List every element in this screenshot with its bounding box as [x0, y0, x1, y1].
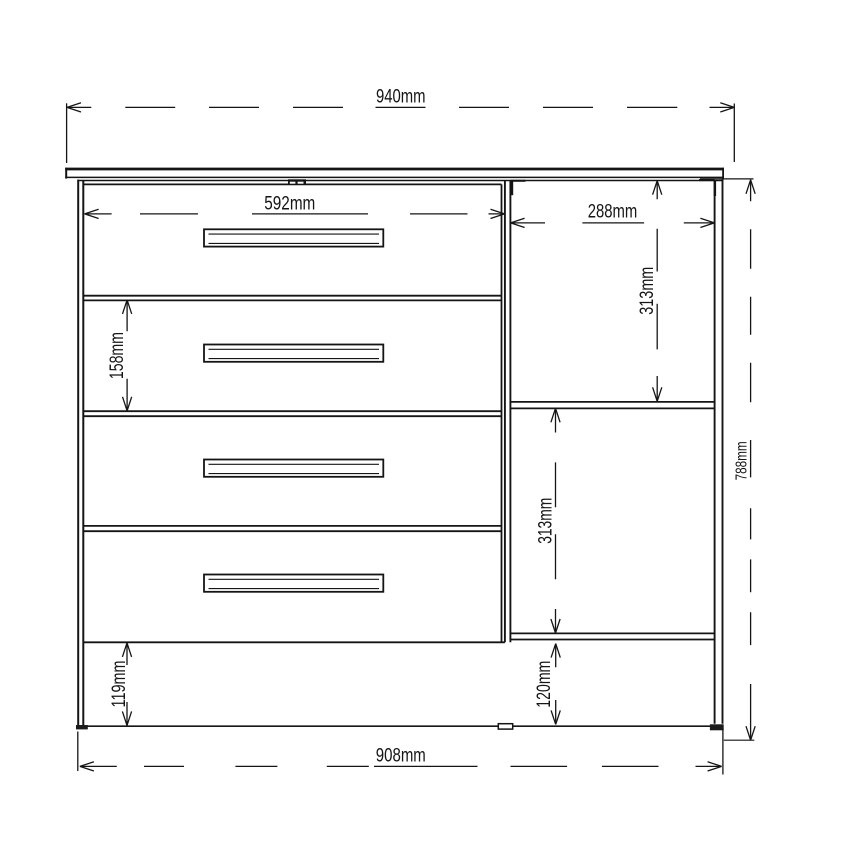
svg-text:288mm: 288mm — [588, 201, 638, 222]
svg-text:119mm: 119mm — [109, 661, 130, 708]
svg-text:313mm: 313mm — [536, 498, 557, 544]
svg-text:908mm: 908mm — [376, 745, 426, 766]
svg-text:120mm: 120mm — [534, 661, 555, 708]
svg-text:940mm: 940mm — [376, 87, 426, 108]
svg-text:592mm: 592mm — [264, 193, 315, 214]
svg-text:788mm: 788mm — [734, 441, 751, 480]
svg-text:313mm: 313mm — [637, 267, 658, 315]
svg-text:158mm: 158mm — [107, 332, 128, 379]
